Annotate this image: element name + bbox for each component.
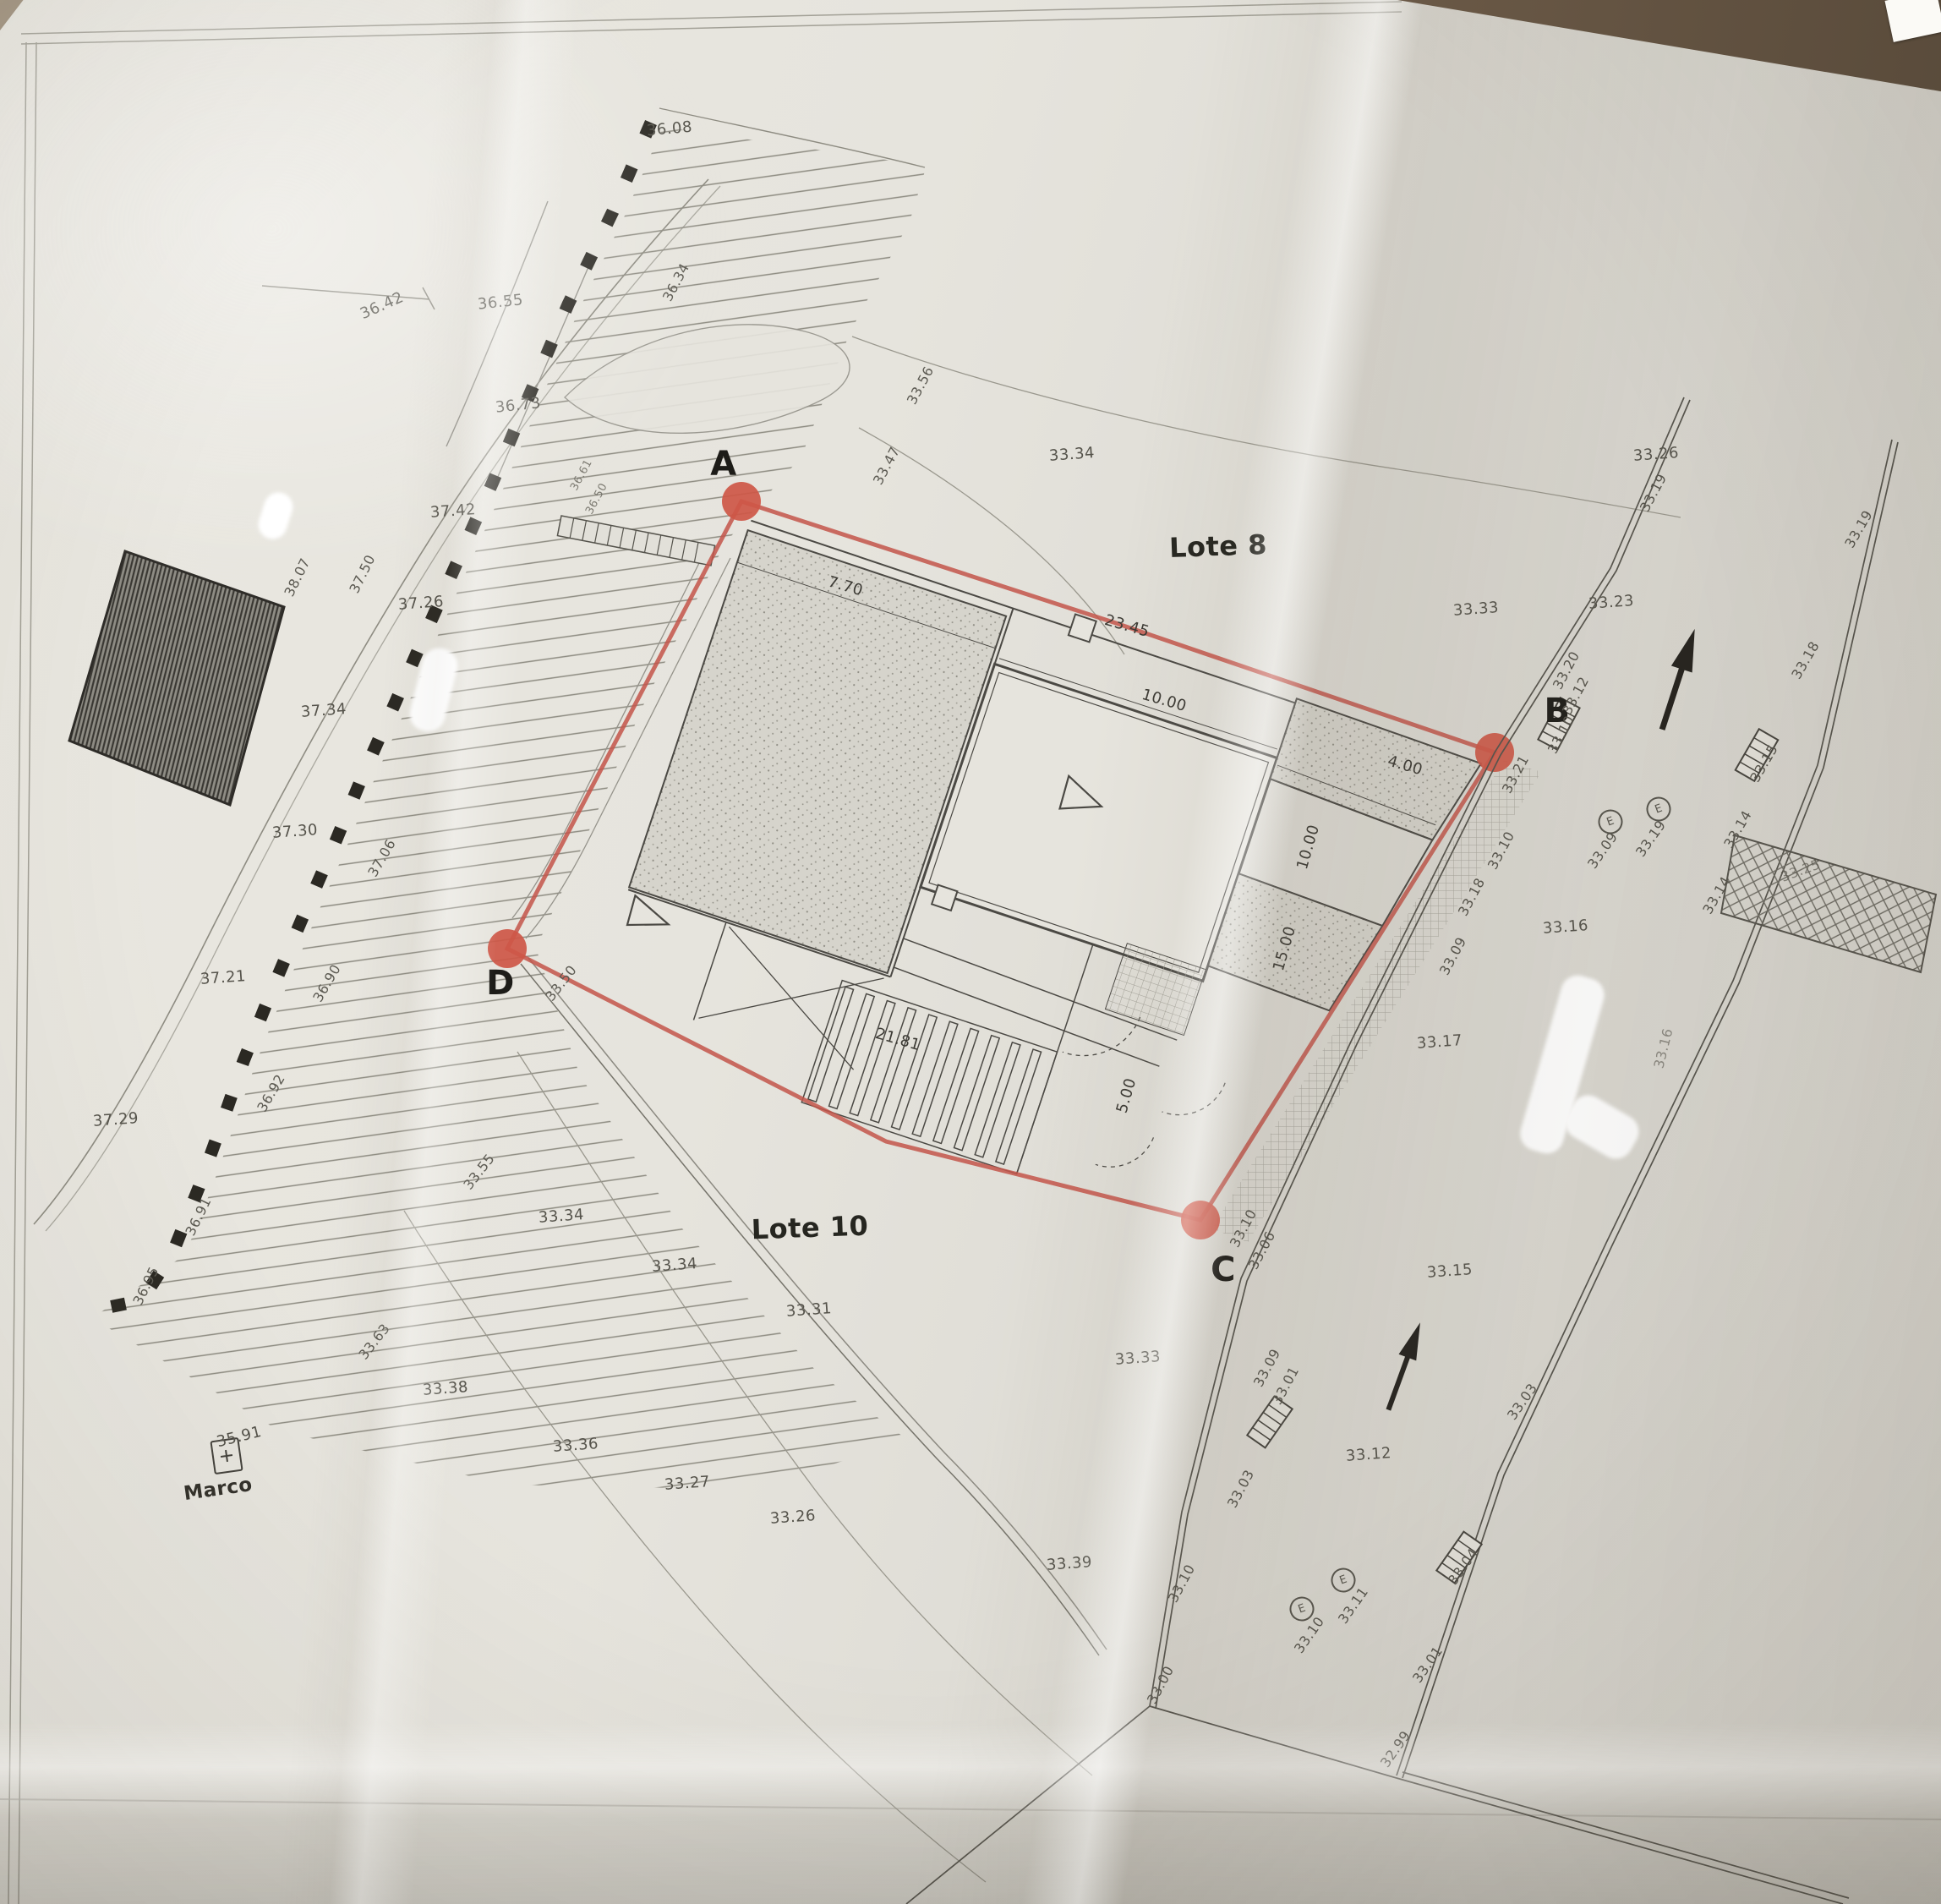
spot-elevation: 37.29	[92, 1111, 139, 1130]
contour-elevation: 33.55	[462, 1152, 497, 1192]
lot-8-label: Lote 8	[1169, 531, 1268, 561]
pole-elevation-label: 33.09	[1586, 830, 1621, 872]
dimension-label: 23.45	[1103, 613, 1151, 640]
contour-elevation: 33.63	[357, 1321, 392, 1362]
corner-a-label: A	[710, 447, 736, 481]
spot-elevation: 33.33	[1452, 600, 1499, 619]
road-station-label: 33.21	[1501, 753, 1532, 796]
spot-elevation: 37.30	[271, 823, 318, 841]
spot-elevation: 36.08	[646, 120, 692, 140]
spot-elevation: 33.26	[1632, 446, 1679, 464]
spot-elevation: 33.17	[1416, 1033, 1463, 1052]
spot-elevation: 37.26	[397, 594, 444, 613]
road-station-label: 33.10	[1486, 829, 1517, 872]
spot-elevation: 35.91	[216, 1425, 264, 1451]
pole-elevation-label: 33.19	[1634, 818, 1669, 860]
dimension-label: 7.70	[826, 575, 864, 599]
road-station-label: 33.00	[1145, 1664, 1177, 1706]
dimension-label: 10.00	[1140, 687, 1189, 714]
spot-elevation: 36.42	[358, 290, 407, 322]
road-station-label: 33.18	[1790, 639, 1822, 681]
dimension-label: 4.00	[1386, 754, 1424, 779]
corner-c-label: C	[1211, 1253, 1236, 1287]
map-labels: Lote 8Lote 10MarcoABCD7.7023.4510.004.00…	[0, 0, 1941, 1904]
road-station-label: 33.14	[1722, 808, 1754, 851]
road-station-label: 33.18	[1457, 876, 1488, 918]
road-station-label: 33.06	[1247, 1229, 1278, 1272]
contour-elevation: 33.56	[905, 364, 937, 407]
road-station-label: 33.04	[1446, 1546, 1481, 1588]
road-station-label: 33.03	[1506, 1381, 1540, 1423]
road-station-label: 33.25	[1780, 857, 1823, 884]
spot-elevation: 33.27	[664, 1475, 710, 1493]
spot-elevation: 33.34	[538, 1207, 584, 1226]
spot-elevation: 33.23	[1588, 594, 1634, 612]
utility-pole-icon: E	[1594, 806, 1626, 837]
contour-elevation: 37.06	[366, 837, 398, 879]
road-station-label: 33.16	[1652, 1027, 1675, 1070]
road-station-label: 33.10	[1228, 1207, 1260, 1250]
spot-elevation: 33.34	[651, 1256, 697, 1275]
road-station-label: 33.19	[1843, 508, 1875, 550]
spot-elevation: 33.15	[1426, 1262, 1473, 1281]
contour-elevation: 37.50	[347, 553, 378, 595]
road-station-label: 33.15	[1748, 742, 1780, 785]
utility-pole-icon: E	[1643, 793, 1674, 824]
road-station-label: 33.14	[1701, 874, 1733, 916]
dimension-label: 21.81	[874, 1026, 922, 1053]
spot-elevation: 37.21	[200, 969, 246, 988]
spot-elevation: 33.26	[769, 1508, 816, 1527]
dimension-label: 10.00	[1295, 823, 1322, 872]
road-station-label: 32.99	[1379, 1729, 1413, 1770]
site-plan-photo: Lote 8Lote 10MarcoABCD7.7023.4510.004.00…	[0, 0, 1941, 1904]
spot-elevation: 33.34	[1048, 446, 1095, 464]
contour-elevation: 38.07	[282, 556, 313, 599]
spot-elevation: 33.31	[785, 1301, 832, 1320]
contour-elevation: 36.34	[661, 261, 692, 304]
lot-10-label: Lote 10	[751, 1212, 869, 1244]
contour-elevation: 36.50	[584, 481, 610, 516]
road-station-label: 33.10	[1167, 1562, 1198, 1605]
marco-label: Marco	[183, 1475, 254, 1504]
spot-elevation: 33.16	[1542, 918, 1588, 937]
spot-elevation: 33.12	[1345, 1446, 1392, 1464]
road-station-label: 33.01	[1271, 1365, 1302, 1407]
road-station-label: 33.01	[1411, 1644, 1446, 1686]
contour-elevation: 36.95	[131, 1265, 161, 1307]
spot-elevation: 37.34	[300, 702, 347, 720]
spot-elevation: 33.36	[552, 1436, 599, 1455]
contour-elevation: 33.50	[544, 963, 579, 1004]
contour-elevation: 36.91	[183, 1195, 214, 1238]
spot-elevation: 33.33	[1114, 1349, 1161, 1368]
road-station-label: 33.03	[1226, 1468, 1257, 1510]
road-station-label: 33.09	[1438, 935, 1469, 977]
spot-elevation: 36.55	[477, 293, 524, 313]
contour-elevation: 36.90	[311, 962, 343, 1004]
spot-elevation: 33.38	[422, 1380, 468, 1398]
spot-elevation: 37.42	[429, 502, 476, 521]
spot-elevation: 36.73	[495, 396, 542, 416]
spot-elevation: 33.39	[1046, 1555, 1092, 1573]
contour-elevation: 36.61	[569, 457, 594, 492]
road-station-label: 33.19	[1638, 472, 1670, 514]
contour-elevation: 33.47	[872, 445, 903, 487]
corner-d-label: D	[486, 966, 515, 1000]
dimension-label: 5.00	[1115, 1076, 1140, 1114]
contour-elevation: 36.92	[255, 1072, 287, 1114]
dimension-label: 15.00	[1271, 925, 1299, 973]
